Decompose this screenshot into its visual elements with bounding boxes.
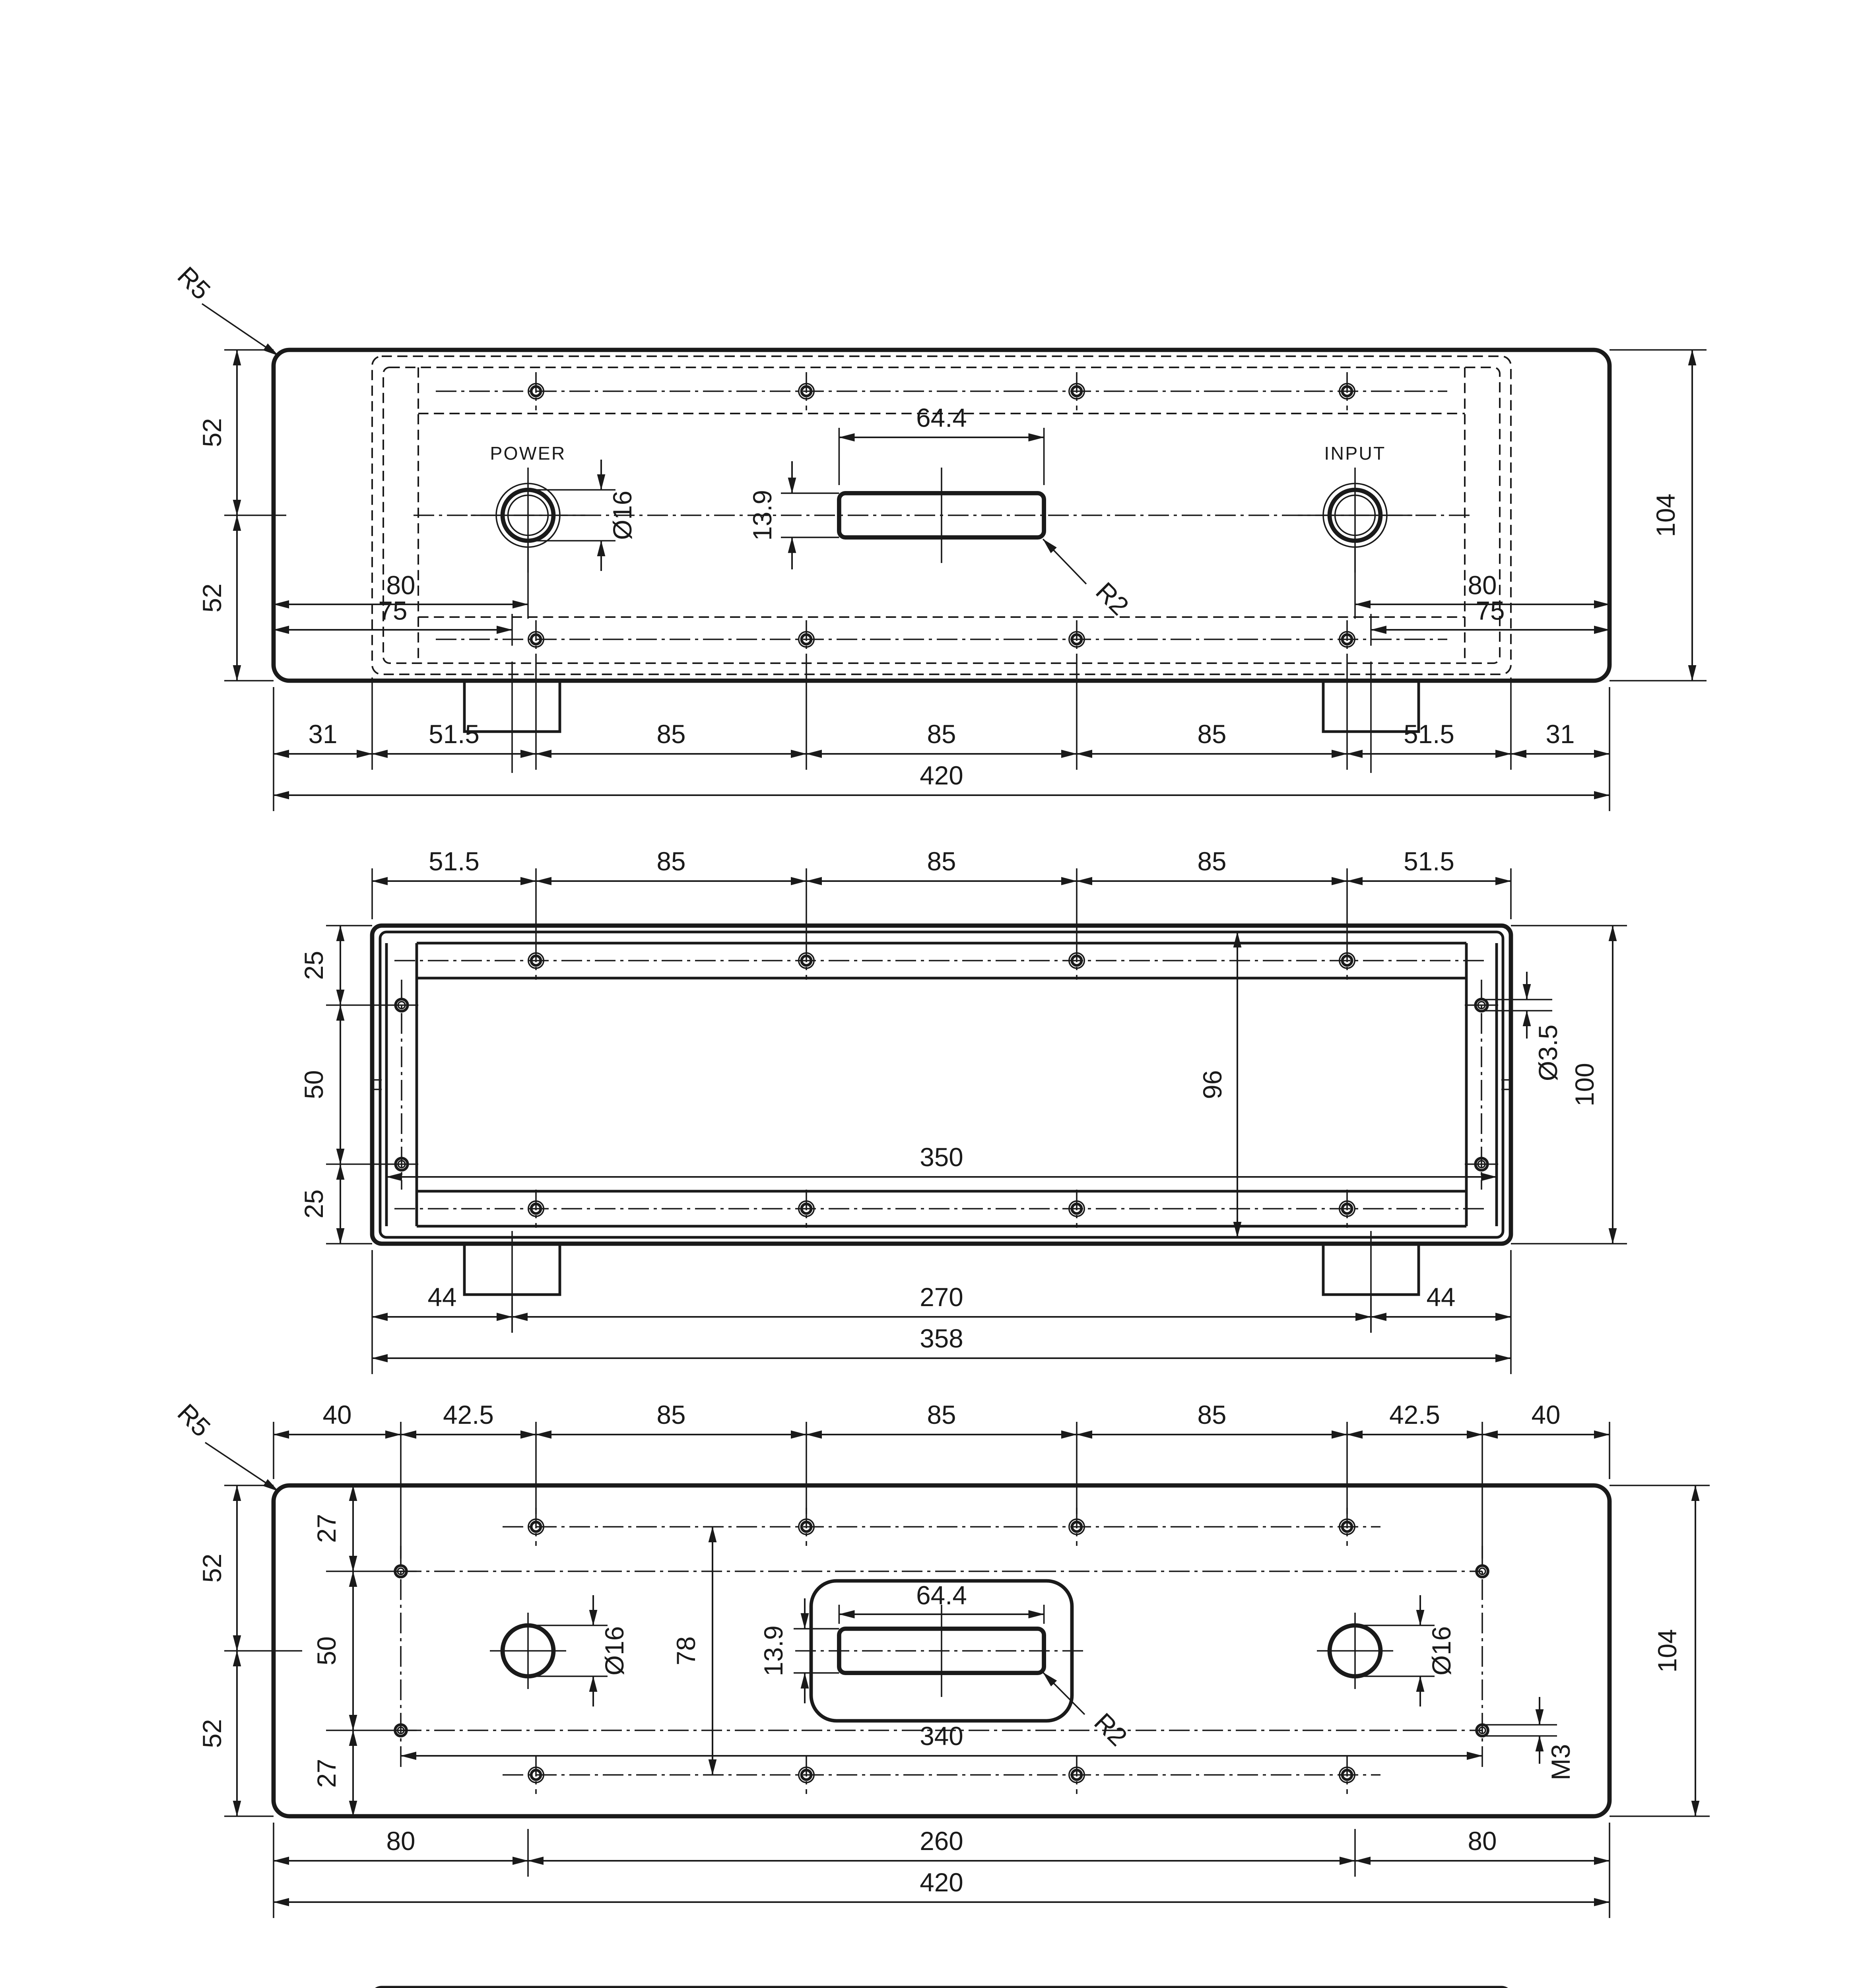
- v1-chain-85b: 85: [927, 720, 956, 749]
- v2-dim-100: 100: [1570, 1063, 1599, 1106]
- v3-chain-42-5a: 42.5: [443, 1400, 494, 1429]
- v2-outline: [372, 926, 1511, 1244]
- v3-chain-40b: 40: [1532, 1400, 1561, 1429]
- input-label: INPUT: [1324, 443, 1386, 464]
- v3-radius-r5: R5: [172, 1398, 216, 1442]
- v2-chain-85a: 85: [657, 847, 686, 876]
- view-3-chassis-bottom-panel: 40 42.5 85 85 85 42.5 40 R5 52 52 27 50 …: [172, 1398, 1710, 1918]
- v1-chain-85c: 85: [1198, 720, 1227, 749]
- v2-chain-85c: 85: [1198, 847, 1227, 876]
- v2-dia3-5: Ø3.5: [1534, 1025, 1563, 1081]
- v3-chain-85c: 85: [1198, 1400, 1227, 1429]
- v2-chain-51-5a: 51.5: [429, 847, 480, 876]
- v3-dim-52-bottom: 52: [198, 1719, 227, 1748]
- v3-dim-80-left: 80: [386, 1827, 415, 1856]
- v1-dim-64-4: 64.4: [916, 404, 967, 433]
- v2-dim-350: 350: [920, 1143, 963, 1172]
- drawing-sheet: POWER INPUT R5 52 52: [0, 0, 1860, 1988]
- v1-feet: [464, 662, 1419, 773]
- v2-dim-358: 358: [920, 1324, 963, 1353]
- v3-dim-104: 104: [1653, 1629, 1682, 1672]
- v3-m3: M3: [1546, 1744, 1575, 1780]
- v1-chain-85a: 85: [657, 720, 686, 749]
- power-label: POWER: [490, 443, 566, 464]
- v3-radius-r2: R2: [1089, 1707, 1133, 1751]
- v2-chain-85b: 85: [927, 847, 956, 876]
- v3-dim-27-top: 27: [312, 1514, 341, 1543]
- v1-dim-104: 104: [1651, 493, 1680, 537]
- v3-dim-420: 420: [920, 1868, 963, 1897]
- v3-dim-260: 260: [920, 1827, 963, 1856]
- v2-centerlines: [394, 942, 1489, 1228]
- v3-dim-27-bottom: 27: [312, 1759, 341, 1788]
- v1-dim-75-left: 75: [379, 596, 408, 625]
- v3-dia16-right: Ø16: [1427, 1626, 1456, 1675]
- v2-dim-25-bottom: 25: [299, 1190, 328, 1219]
- v2-chain-51-5b: 51.5: [1404, 847, 1454, 876]
- v1-dim-80-right: 80: [1468, 571, 1497, 600]
- v3-dim-13-9: 13.9: [759, 1625, 788, 1676]
- v2-dim-96: 96: [1198, 1070, 1227, 1099]
- v1-dim-52-top: 52: [198, 418, 227, 447]
- v1-dim-80-left: 80: [386, 571, 415, 600]
- v1-dia16: Ø16: [608, 491, 637, 540]
- v3-chain-42-5b: 42.5: [1389, 1400, 1440, 1429]
- view-2-case-plan: 51.5 85 85 85 51.5 25 50 25 350 96 Ø3.5: [299, 847, 1627, 1374]
- v2-dim-270: 270: [920, 1283, 963, 1312]
- v2-dim-25-top: 25: [299, 951, 328, 980]
- v3-dim-52-top: 52: [198, 1554, 227, 1583]
- v3-dim-340: 340: [920, 1722, 963, 1751]
- v1-dim-420: 420: [920, 761, 963, 790]
- v3-dim-50: 50: [312, 1637, 341, 1666]
- v1-chain-51-5b: 51.5: [1404, 720, 1454, 749]
- v1-chain-51-5a: 51.5: [429, 720, 480, 749]
- v3-dim-80-right: 80: [1468, 1827, 1497, 1856]
- v1-radius-r5: R5: [172, 261, 216, 305]
- v1-chain-31b: 31: [1546, 720, 1575, 749]
- v1-chain-31a: 31: [309, 720, 338, 749]
- v3-dim-78: 78: [672, 1637, 701, 1666]
- v1-dim-13-9: 13.9: [748, 490, 777, 541]
- v1-dim-75-right: 75: [1476, 596, 1505, 625]
- view-1-chassis-top-panel: POWER INPUT R5 52 52: [172, 261, 1707, 811]
- v1-radius-r2: R2: [1090, 577, 1134, 621]
- v3-chain-85b: 85: [927, 1400, 956, 1429]
- v2-rails-and-flanges: [372, 943, 1511, 1226]
- v3-dia16-left: Ø16: [600, 1626, 629, 1675]
- v2-dim-44-left: 44: [428, 1283, 457, 1312]
- v2-dim-50: 50: [299, 1070, 328, 1099]
- v3-chain-40a: 40: [323, 1400, 352, 1429]
- v3-chain-85a: 85: [657, 1400, 686, 1429]
- v2-dim-44-right: 44: [1427, 1283, 1456, 1312]
- v1-dim-52-bottom: 52: [198, 584, 227, 613]
- v3-dim-64-4: 64.4: [916, 1581, 967, 1610]
